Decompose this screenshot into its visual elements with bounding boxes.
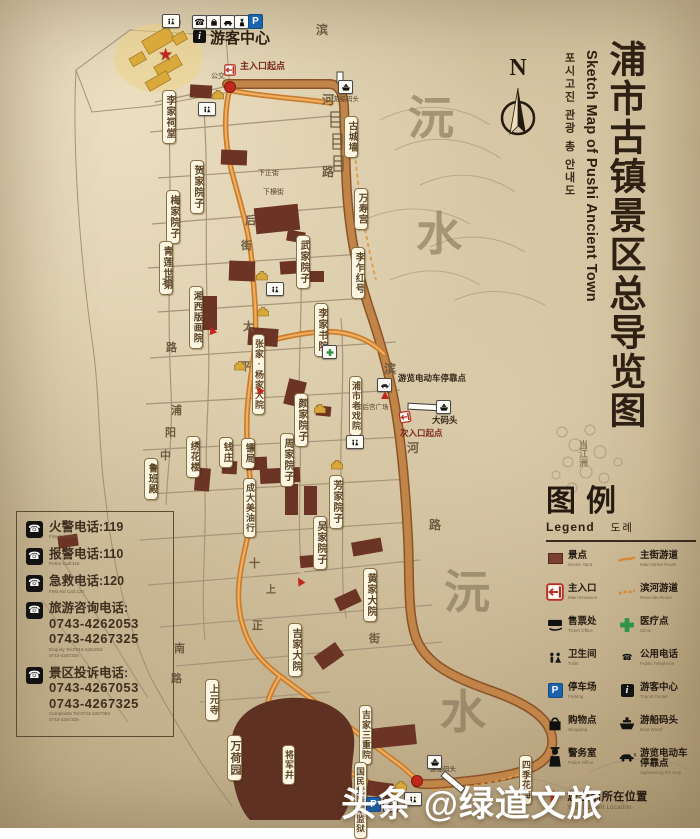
- poi-label-20: 吉家大院: [288, 623, 302, 677]
- street-char-19: 正: [252, 621, 263, 632]
- map-text-3: 公交: [211, 73, 225, 81]
- street-char-6: 太: [243, 322, 254, 333]
- phone-entry-number: 0743-4262053: [49, 616, 139, 632]
- emergency-phone-box: ☎火警电话:119Fire Call:119☎报警电话:110Police Ca…: [16, 511, 174, 737]
- temple-marker-13: [255, 270, 269, 281]
- poster-title-ko: 포시고진 관광 총 안내도: [561, 52, 577, 432]
- car-icon: [220, 15, 235, 29]
- boat-icon: [436, 400, 451, 414]
- police-icon: [234, 15, 249, 29]
- phone-entry-caption: First Aid Call:120: [49, 589, 124, 595]
- poi-label-12: 绣花楼: [186, 436, 200, 478]
- bag-marker-2: [206, 15, 221, 29]
- cross-marker-16: [322, 345, 337, 359]
- watermark: 头条 @绿道文旅: [341, 776, 603, 827]
- legend-item-caption: Parking: [568, 694, 597, 699]
- phone-handset-icon: ☎: [26, 548, 43, 565]
- poi-label-13: 钱庄: [219, 437, 233, 468]
- legend-panel: 图例 Legend 도례 景点Scenic Spot主街游道Main Stree…: [546, 486, 696, 811]
- map-text-5: 下正街: [258, 170, 279, 178]
- legend-item-caption: Boat Wharf: [640, 727, 678, 732]
- river-name-char-1: 水: [416, 212, 462, 258]
- poi-label-21: 上元寺: [205, 679, 219, 721]
- shopping-icon: [206, 15, 221, 29]
- phone-entry-caption: 0743-4267325: [49, 653, 139, 659]
- phone-entry-3: ☎旅游咨询电话:0743-42620530743-4267325Enquiry …: [26, 601, 164, 659]
- legend-item-11: 游船码头Boat Wharf: [618, 716, 696, 742]
- street-char-10: 北: [162, 277, 173, 288]
- poi-label-16: 成大美油行: [243, 478, 256, 538]
- legend-item-label: 游船码头: [640, 716, 678, 726]
- wc-marker-14: [266, 282, 284, 296]
- poi-label-17: 芳家院子: [329, 475, 343, 529]
- street-char-20: 街: [369, 634, 380, 645]
- temple-icon: [233, 358, 247, 375]
- poi-label-2: 梅家院子: [166, 190, 180, 244]
- river-name-char-2: 沅: [444, 570, 490, 616]
- boat-icon: [618, 716, 636, 732]
- parking-icon: P: [248, 14, 263, 29]
- phone-entry-text: 火警电话:119Fire Call:119: [49, 520, 123, 541]
- phone-entry-text: 急救电话:120First Aid Call:120: [49, 574, 124, 595]
- street-char-13: 阳: [165, 428, 176, 439]
- legend-item-label: 滨河游道: [640, 584, 678, 594]
- poi-label-24: 将军井: [282, 745, 295, 785]
- car-marker-3: [220, 15, 235, 29]
- phone-marker-1: ☎: [192, 15, 207, 29]
- river-name-char-3: 水: [440, 690, 486, 736]
- map-text-7: 游览电动车停靠点: [398, 374, 466, 383]
- legend-item-label: 警务室: [568, 749, 597, 759]
- legend-item-caption: Police Office: [568, 760, 597, 765]
- legend-item-label: 售票处: [568, 617, 597, 627]
- street-char-18: 上: [266, 586, 276, 596]
- temple-icon: [313, 401, 327, 418]
- phone-entry-4: ☎景区投诉电话:0743-42670530743-4267325Complain…: [26, 666, 164, 724]
- phone-entry-number: 0743-4267053: [49, 680, 139, 696]
- ev-icon: [618, 749, 636, 765]
- street-char-3: 滨: [384, 363, 396, 375]
- legend-item-4: 售票处Ticket Office: [546, 617, 618, 643]
- legend-item-7: ☎公用电话Public Telephone: [618, 650, 696, 676]
- route-line-icon: [618, 551, 636, 567]
- star-marker-9: ★: [158, 46, 173, 63]
- legend-item-caption: Tourist Center: [640, 694, 678, 699]
- poi-label-22: 吉家三重院: [359, 705, 372, 765]
- poi-label-23: 万荷园: [227, 735, 242, 781]
- legend-item-13: 游览电动车停靠点Sightseeing EV Stop: [618, 749, 696, 776]
- police-icon: [546, 749, 564, 765]
- temple-icon: [256, 304, 270, 321]
- temple-marker-10: [211, 89, 225, 100]
- legend-item-label: 景点: [568, 551, 592, 561]
- poi-label-6: 李乍红号: [351, 247, 365, 299]
- phone-entry-number: 0743-4267325: [49, 696, 139, 712]
- legend-subtitle-en: Legend: [546, 520, 595, 534]
- dot-marker-8: [224, 81, 236, 93]
- phone-entry-caption: Fire Call:119: [49, 534, 123, 540]
- street-char-4: 河: [407, 442, 419, 454]
- direction-arrow-icon: [207, 325, 217, 335]
- phone-handset-icon: ☎: [26, 602, 43, 619]
- street-char-17: 十: [249, 559, 260, 570]
- poi-label-14: 镖局: [241, 438, 255, 469]
- poi-label-18: 吴家院子: [313, 516, 327, 570]
- i-marker-6: i: [193, 30, 206, 43]
- poster-title-en: Sketch Map of Pushi Ancient Town: [583, 50, 599, 445]
- poi-label-19: 黄家大院: [363, 568, 377, 622]
- poi-label-15: 鲁班殿: [144, 458, 158, 500]
- legend-item-9: i游客中心Tourist Center: [618, 683, 696, 709]
- phone-entry-title: 报警电话:110: [49, 547, 123, 561]
- wc-icon: [162, 14, 180, 28]
- map-text-6: 下横街: [263, 189, 284, 197]
- phone-entry-title: 急救电话:120: [49, 574, 124, 588]
- ev-marker-18: [377, 378, 392, 392]
- street-char-8: 后: [245, 216, 256, 227]
- temple-marker-20: [313, 403, 327, 414]
- legend-item-10: 购物点Shopping: [546, 716, 618, 742]
- legend-item-3: 滨河游道Riverside Route: [618, 584, 696, 610]
- legend-subtitle: Legend 도례: [546, 520, 696, 535]
- legend-item-label: 购物点: [568, 716, 597, 726]
- street-char-2: 路: [322, 166, 334, 178]
- phone-entry-caption: Police Call:110: [49, 561, 123, 567]
- legend-item-caption: Main Entrance: [568, 595, 597, 600]
- poi-label-1: 贺家院子: [190, 160, 204, 214]
- phone-entry-title: 火警电话:119: [49, 520, 123, 534]
- legend-item-label: 游客中心: [640, 683, 678, 693]
- phone-entry-caption: 0743-4267325: [49, 717, 139, 723]
- legend-item-caption: Ticket Office: [568, 628, 597, 633]
- legend-item-label: 停车场: [568, 683, 597, 693]
- wc-icon: [266, 282, 284, 296]
- wc-icon: [198, 102, 216, 116]
- arrow-marker-25: [207, 325, 217, 335]
- legend-grid: 景点Scenic Spot主街游道Main Street Route主入口Mai…: [546, 551, 696, 776]
- phone-icon: ☎: [192, 15, 207, 29]
- entrance-icon: [224, 63, 236, 80]
- phone-icon: ☎: [618, 650, 636, 666]
- medical-icon: [322, 345, 337, 359]
- gate-marker-7: [224, 64, 236, 76]
- medical-icon: [618, 617, 636, 633]
- phone-handset-icon: ☎: [26, 521, 43, 538]
- arrow-marker-19: [381, 391, 389, 399]
- entrance-icon: [546, 584, 564, 600]
- ev-icon: [377, 378, 392, 392]
- legend-item-label: 公用电话: [640, 650, 678, 660]
- poster: N 浦市古镇景区总导览图 Sketch Map of Pushi Ancient…: [0, 0, 700, 828]
- temple-marker-17: [233, 360, 247, 371]
- street-char-12: 浦: [171, 406, 182, 417]
- legend-item-caption: Riverside Route: [640, 595, 678, 600]
- phone-entry-text: 报警电话:110Police Call:110: [49, 547, 123, 568]
- street-char-0: 滨: [316, 24, 328, 36]
- legend-item-caption: Toilet: [568, 661, 597, 666]
- phone-handset-icon: ☎: [26, 575, 43, 592]
- temple-icon: [330, 457, 344, 474]
- legend-item-label: 卫生间: [568, 650, 597, 660]
- map-text-4: 游船码头: [333, 96, 359, 103]
- wc-marker-11: [198, 102, 216, 116]
- arrow-marker-27: [295, 576, 306, 587]
- phone-entry-text: 旅游咨询电话:0743-42620530743-4267325Enquiry T…: [49, 601, 139, 659]
- temple-marker-23: [330, 459, 344, 470]
- legend-item-2: 主入口Main Entrance: [546, 584, 618, 610]
- street-char-14: 中: [160, 451, 171, 462]
- legend-item-1: 主街游道Main Street Route: [618, 551, 696, 577]
- poi-label-8: 张家·杨家大院: [252, 334, 265, 415]
- phone-entry-0: ☎火警电话:119Fire Call:119: [26, 520, 164, 541]
- map-text-2: 主入口起点: [240, 62, 285, 72]
- street-char-9: 街: [241, 241, 252, 252]
- legend-item-12: 警务室Police Office: [546, 749, 618, 776]
- phone-handset-icon: ☎: [26, 667, 43, 684]
- direction-arrow-icon: [295, 576, 306, 587]
- legend-divider: [546, 540, 696, 542]
- poi-label-5: 武家院子: [296, 235, 310, 289]
- phone-entry-1: ☎报警电话:110Police Call:110: [26, 547, 164, 568]
- phone-entry-title: 景区投诉电话:: [49, 666, 139, 680]
- legend-item-label: 主入口: [568, 584, 597, 594]
- info-icon: i: [618, 683, 636, 699]
- legend-item-caption: Sightseeing EV Stop: [640, 770, 696, 775]
- current-location-star-icon: ★: [158, 45, 173, 64]
- legend-item-label: 主街游道: [640, 551, 678, 561]
- legend-item-caption: Clinic: [640, 628, 669, 633]
- poi-label-11: 周家院子: [280, 433, 294, 487]
- legend-item-0: 景点Scenic Spot: [546, 551, 618, 577]
- gate-marker-22: [398, 410, 412, 424]
- ticket-icon: [546, 617, 564, 633]
- phone-entry-title: 旅游咨询电话:: [49, 601, 139, 615]
- legend-item-6: 卫生间Toilet: [546, 650, 618, 676]
- wc-marker-24: [346, 435, 364, 449]
- street-char-15: 南: [174, 644, 185, 655]
- boat-icon: [427, 755, 442, 769]
- entrance-icon: [398, 409, 413, 428]
- boat-icon: [338, 80, 353, 94]
- boat-marker-21: [436, 400, 451, 414]
- compass: N: [487, 56, 549, 156]
- legend-title: 图例: [546, 486, 696, 518]
- poi-label-10: 颜家院子: [294, 393, 308, 447]
- street-char-5: 路: [429, 519, 441, 531]
- poster-title-zh: 浦市古镇景区总导览图: [596, 40, 650, 445]
- wc-icon: [546, 650, 564, 666]
- phone-entry-text: 景区投诉电话:0743-42670530743-4267325Complaint…: [49, 666, 139, 724]
- wc-icon: [346, 435, 364, 449]
- legend-item-caption: Main Street Route: [640, 562, 678, 567]
- poi-label-0: 李家祠堂: [162, 90, 176, 144]
- parking-icon: P: [546, 683, 564, 699]
- map-text-9: 大码头: [432, 416, 458, 425]
- info-icon: i: [193, 30, 206, 43]
- phone-entry-number: 0743-4267325: [49, 631, 139, 647]
- poi-label-27: 万寿宫: [354, 188, 368, 230]
- boat-marker-12: [338, 80, 353, 94]
- map-text-10: 次入口起点: [400, 429, 443, 438]
- shopping-icon: [546, 716, 564, 732]
- compass-needle-icon: [487, 80, 549, 150]
- street-char-11: 路: [166, 343, 177, 354]
- legend-item-label: 医疗点: [640, 617, 669, 627]
- legend-item-caption: Public Telephone: [640, 661, 678, 666]
- legend-item-label: 游览电动车停靠点: [640, 749, 696, 770]
- P-marker-5: P: [248, 14, 263, 29]
- phone-entry-2: ☎急救电话:120First Aid Call:120: [26, 574, 164, 595]
- map-text-8: 天后宫广场: [356, 404, 389, 411]
- legend-item-caption: Shopping: [568, 727, 597, 732]
- map-text-1: 游客中心: [210, 31, 270, 48]
- direction-arrow-icon: [381, 391, 389, 399]
- route-endpoint-dot: [224, 81, 236, 93]
- poi-label-28: 古城墙: [344, 116, 358, 158]
- police-marker-4: [234, 15, 249, 29]
- legend-item-caption: Scenic Spot: [568, 562, 592, 567]
- legend-subtitle-ko: 도례: [611, 520, 634, 535]
- legend-item-5: 医疗点Clinic: [618, 617, 696, 643]
- boat-marker-31: [427, 755, 442, 769]
- river-name-char-0: 沅: [408, 96, 454, 142]
- temple-marker-15: [256, 306, 270, 317]
- compass-n-label: N: [487, 56, 549, 80]
- poi-label-4: 湘西版画院: [189, 286, 203, 349]
- route-dashed-icon: [618, 584, 636, 600]
- spot-square-icon: [546, 551, 564, 567]
- wc-marker-0: [162, 14, 180, 28]
- legend-item-8: P停车场Parking: [546, 683, 618, 709]
